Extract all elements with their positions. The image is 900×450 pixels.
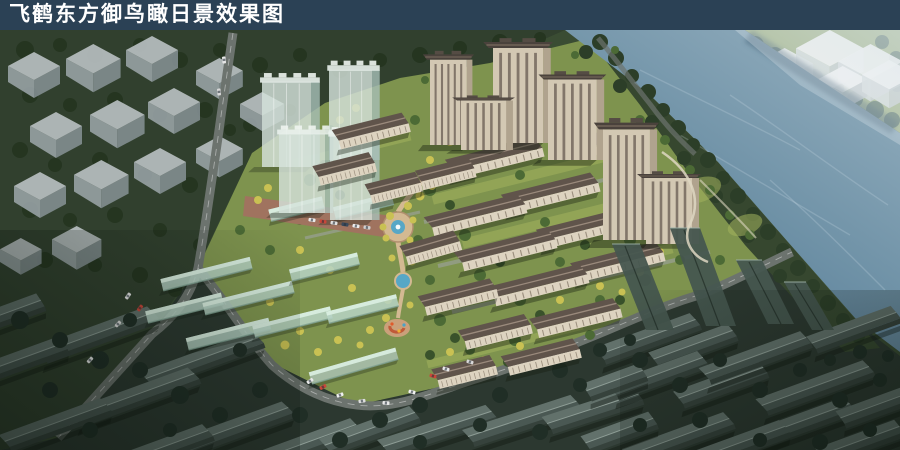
children-playground bbox=[384, 319, 410, 337]
fountain-jet bbox=[396, 225, 401, 230]
rendering-screenshot: 飞鹤东方御鸟瞰日景效果图 bbox=[0, 0, 900, 450]
water-feature-pond bbox=[395, 273, 411, 289]
title-banner: 飞鹤东方御鸟瞰日景效果图 bbox=[0, 0, 900, 30]
page-title: 飞鹤东方御鸟瞰日景效果图 bbox=[9, 0, 285, 30]
vignette-right bbox=[620, 290, 900, 450]
aerial-rendering bbox=[0, 0, 900, 450]
vignette-left bbox=[0, 230, 300, 450]
